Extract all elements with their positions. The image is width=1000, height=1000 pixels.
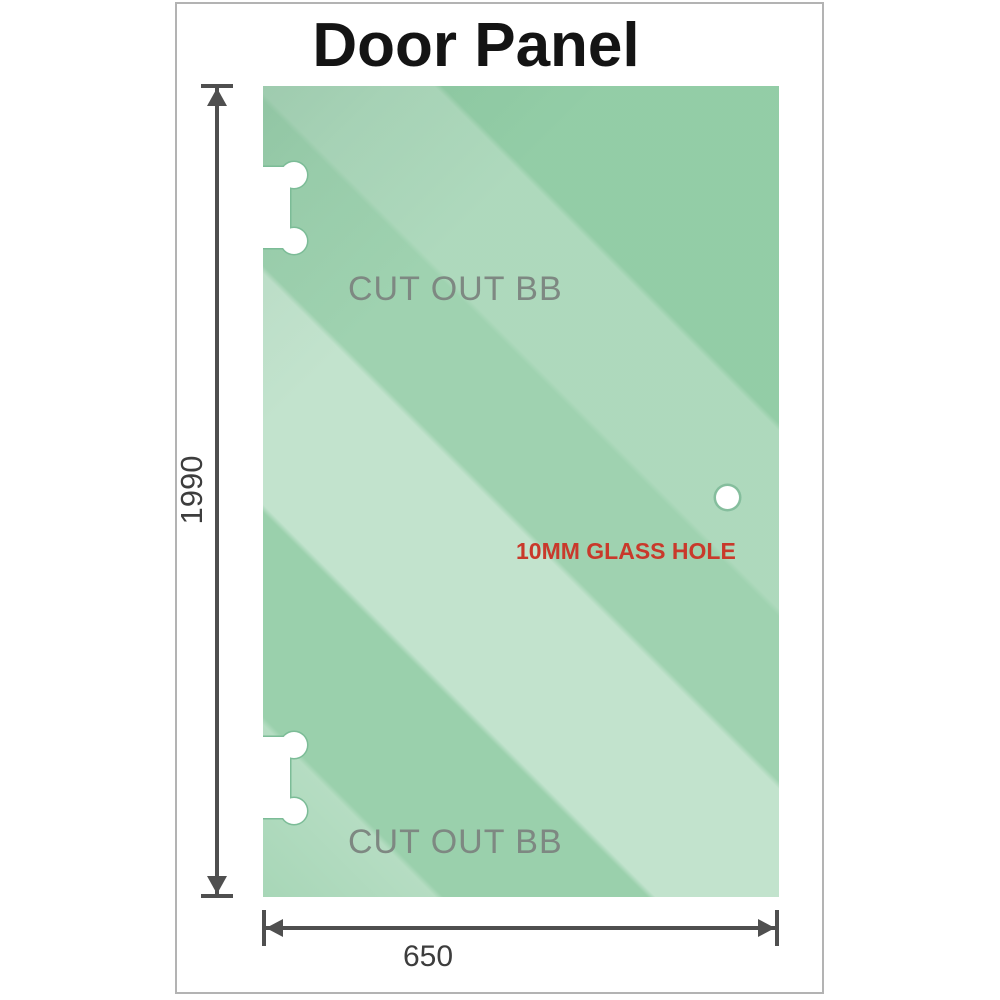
height-dim-arrow-down xyxy=(207,876,227,894)
page-title: Door Panel xyxy=(312,10,639,81)
cutout-bottom-label: CUT OUT BB xyxy=(348,823,563,862)
door-panel-diagram: Door Panel CUT OUT BB xyxy=(0,0,1000,1000)
width-dim-line xyxy=(265,926,777,930)
height-dim-line xyxy=(215,86,219,896)
hinge-cutout-bottom xyxy=(263,729,313,827)
glass-hole-label: 10MM GLASS HOLE xyxy=(516,538,712,565)
width-dim-arrow-right xyxy=(758,919,775,937)
glass-panel: CUT OUT BB CUT OUT BB 10MM GLASS HOLE xyxy=(263,86,779,897)
glass-hole xyxy=(716,486,739,509)
height-dim-arrow-up xyxy=(207,88,227,106)
height-dim-label: 1990 xyxy=(174,456,210,525)
hinge-cutout-fill xyxy=(263,732,307,824)
width-dim-label: 650 xyxy=(403,940,453,974)
width-dim-endcap-right xyxy=(775,910,779,946)
hinge-cutout-top xyxy=(263,159,313,257)
hinge-cutout-fill xyxy=(263,162,307,254)
height-dim-endcap-bottom xyxy=(201,894,233,898)
width-dim-arrow-left xyxy=(266,919,283,937)
cutout-top-label: CUT OUT BB xyxy=(348,270,563,309)
